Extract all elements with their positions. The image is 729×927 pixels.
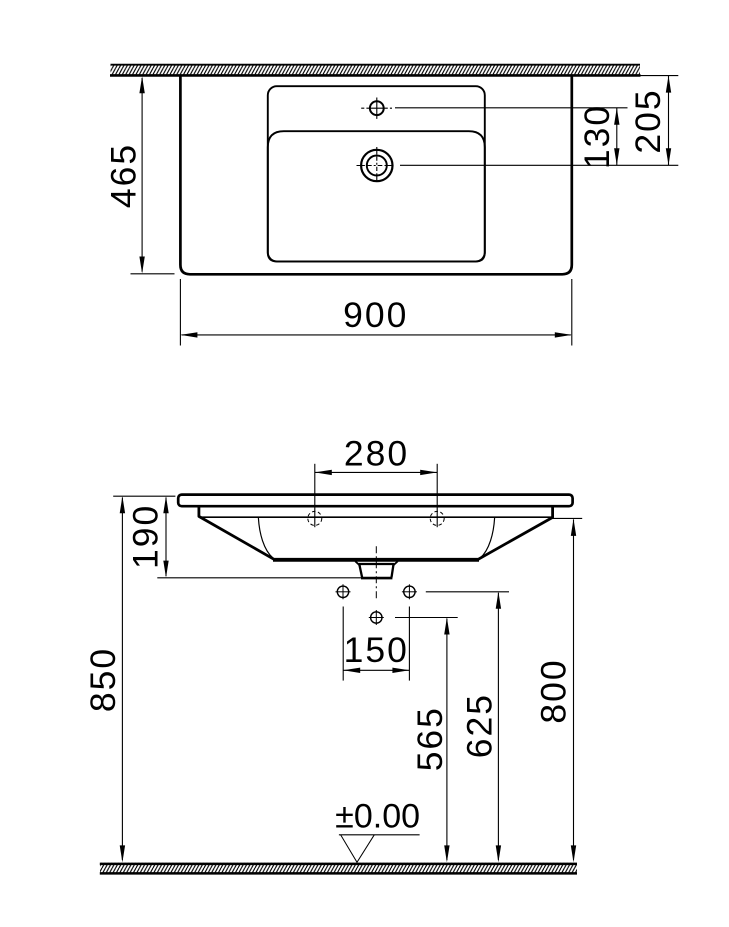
svg-text:190: 190	[125, 504, 165, 569]
svg-text:±0.00: ±0.00	[335, 798, 420, 836]
svg-text:850: 850	[83, 647, 123, 712]
svg-text:280: 280	[344, 434, 409, 474]
svg-text:900: 900	[343, 295, 408, 335]
svg-text:205: 205	[628, 88, 668, 153]
svg-text:465: 465	[103, 143, 143, 208]
svg-text:130: 130	[577, 104, 617, 169]
svg-text:150: 150	[344, 630, 409, 670]
svg-text:800: 800	[534, 658, 574, 723]
svg-text:625: 625	[459, 693, 499, 758]
svg-text:565: 565	[410, 706, 450, 771]
